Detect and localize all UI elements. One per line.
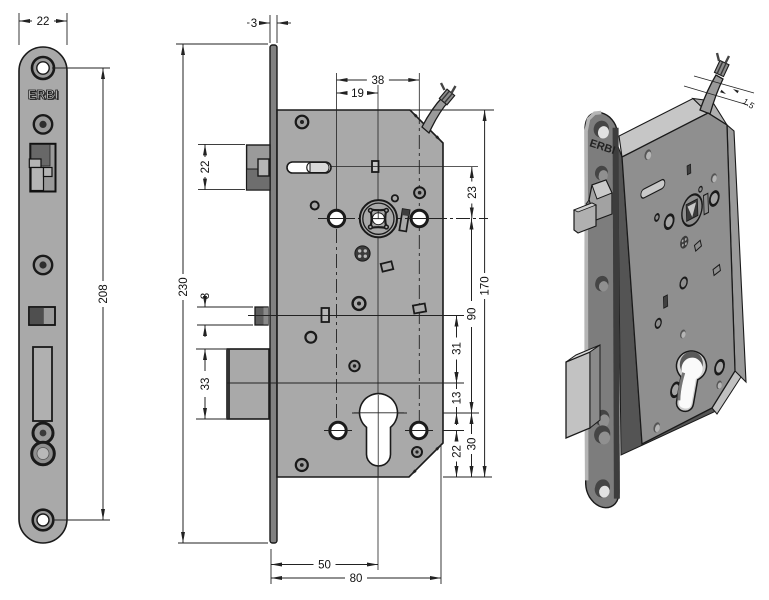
svg-text:22: 22 — [37, 16, 50, 28]
svg-text:31: 31 — [452, 342, 464, 355]
svg-text:170: 170 — [480, 276, 492, 295]
svg-text:208: 208 — [98, 284, 110, 303]
svg-text:230: 230 — [178, 277, 190, 296]
svg-text:8: 8 — [200, 293, 212, 299]
svg-text:30: 30 — [467, 438, 479, 451]
svg-text:22: 22 — [200, 161, 212, 174]
svg-text:23: 23 — [467, 186, 479, 199]
svg-text:80: 80 — [350, 573, 363, 585]
svg-text:ERBI: ERBI — [28, 88, 59, 102]
svg-text:33: 33 — [200, 378, 212, 391]
svg-text:13: 13 — [452, 392, 464, 405]
svg-text:90: 90 — [467, 308, 479, 321]
svg-text:50: 50 — [318, 560, 331, 572]
svg-text:38: 38 — [372, 75, 385, 87]
svg-text:3: 3 — [251, 18, 257, 30]
svg-text:22: 22 — [452, 445, 464, 458]
svg-text:19: 19 — [351, 88, 364, 100]
